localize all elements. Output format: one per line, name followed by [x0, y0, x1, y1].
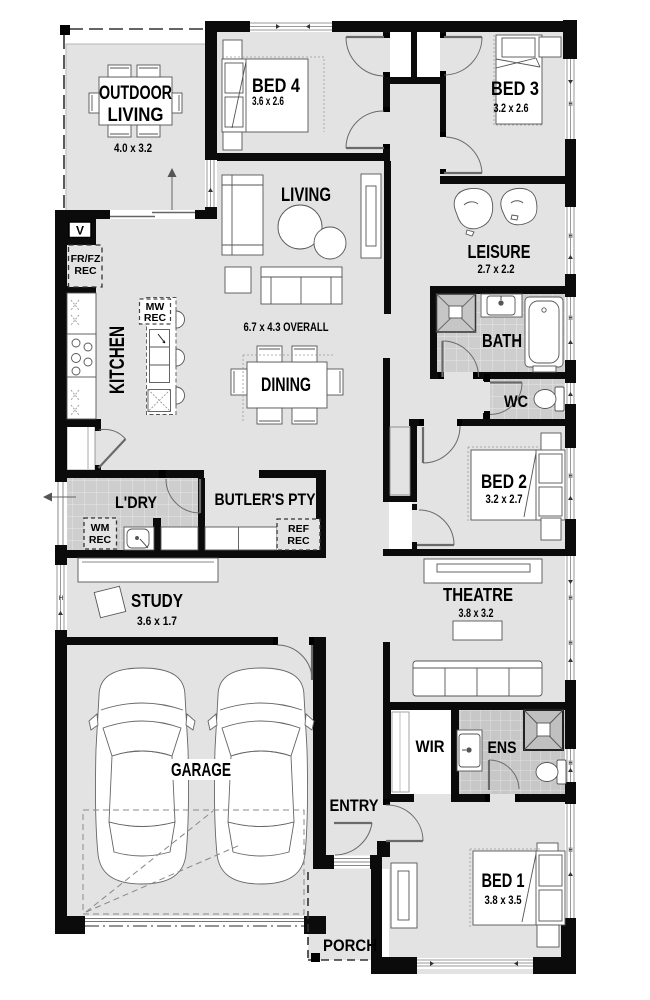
svg-text:H: H	[59, 596, 63, 602]
svg-text:BUTLER'S PTY: BUTLER'S PTY	[215, 491, 316, 509]
svg-text:WC: WC	[504, 392, 528, 411]
svg-text:OUTDOOR: OUTDOOR	[99, 83, 172, 104]
svg-text:H: H	[568, 234, 572, 240]
svg-text:2.7 x 2.2: 2.7 x 2.2	[478, 264, 515, 276]
svg-text:4.0 x 3.2: 4.0 x 3.2	[114, 143, 152, 155]
svg-text:REC: REC	[144, 312, 167, 324]
svg-text:H: H	[568, 848, 572, 854]
svg-text:THEATRE: THEATRE	[443, 585, 513, 605]
svg-text:STUDY: STUDY	[131, 591, 183, 611]
svg-text:BATH: BATH	[482, 331, 522, 351]
svg-text:ENS: ENS	[488, 738, 517, 757]
svg-text:PORCH: PORCH	[323, 936, 377, 955]
svg-text:REC: REC	[287, 535, 310, 547]
svg-text:BED 2: BED 2	[481, 472, 527, 493]
svg-text:REC: REC	[74, 265, 97, 277]
svg-text:H: H	[568, 474, 572, 480]
svg-text:H: H	[568, 641, 572, 647]
svg-text:LIVING: LIVING	[281, 185, 331, 206]
svg-text:H: H	[568, 102, 572, 108]
svg-text:WIR: WIR	[416, 737, 445, 756]
svg-text:LEISURE: LEISURE	[468, 242, 531, 262]
svg-text:6.7 x 4.3 OVERALL: 6.7 x 4.3 OVERALL	[244, 320, 329, 334]
svg-text:V: V	[76, 224, 84, 238]
svg-text:BED 1: BED 1	[482, 871, 525, 892]
svg-text:BED 4: BED 4	[252, 76, 300, 97]
svg-text:LIVING: LIVING	[108, 105, 164, 126]
svg-text:H: H	[568, 316, 572, 322]
svg-text:H: H	[568, 761, 572, 767]
svg-text:3.8 x 3.5: 3.8 x 3.5	[485, 895, 522, 907]
svg-text:3.2 x 2.7: 3.2 x 2.7	[486, 494, 523, 506]
svg-text:DINING: DINING	[261, 375, 311, 396]
svg-text:H: H	[568, 596, 572, 602]
svg-text:BED 3: BED 3	[491, 79, 539, 100]
svg-text:3.6 x 2.6: 3.6 x 2.6	[252, 96, 284, 108]
svg-text:3.2 x 2.6: 3.2 x 2.6	[494, 103, 529, 115]
svg-text:FR/FZ: FR/FZ	[71, 253, 101, 265]
svg-text:3.6 x 1.7: 3.6 x 1.7	[137, 616, 177, 628]
svg-text:REF: REF	[288, 523, 310, 535]
svg-text:REC: REC	[89, 534, 112, 546]
svg-text:L'DRY: L'DRY	[115, 493, 158, 512]
svg-text:KITCHEN: KITCHEN	[106, 326, 129, 394]
svg-text:ENTRY: ENTRY	[330, 796, 380, 815]
svg-text:GARAGE: GARAGE	[171, 760, 231, 780]
svg-text:WM: WM	[91, 522, 110, 534]
svg-text:3.8 x 3.2: 3.8 x 3.2	[459, 608, 494, 620]
